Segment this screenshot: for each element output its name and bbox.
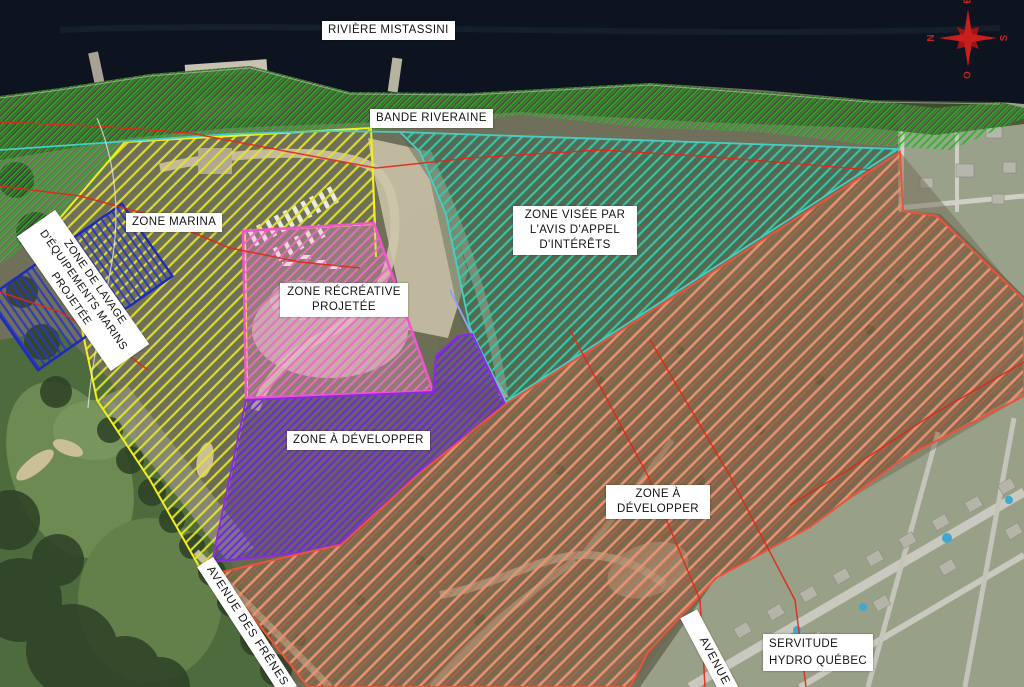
site-plan-map: RIVIÈRE MISTASSINI BANDE RIVERAINE ZONE … — [0, 0, 1024, 687]
aerial-photo-layers — [0, 0, 1024, 687]
label-servitude-hydro-quebec: SERVITUDE HYDRO QUÉBEC — [763, 634, 873, 671]
compass-west: O — [963, 71, 974, 79]
label-zone-marina: ZONE MARINA — [126, 213, 222, 232]
label-zone-developper-est: ZONE À DÉVELOPPER — [606, 485, 710, 519]
label-zone-recreative: ZONE RÉCRÉATIVE PROJETÉE — [280, 283, 408, 317]
compass-rose: N E S O — [930, 0, 1006, 76]
label-zone-avis-interets: ZONE VISÉE PAR L'AVIS D'APPEL D'INTÉRÊTS — [513, 206, 637, 255]
compass-south: S — [999, 35, 1010, 42]
label-bande-riveraine: BANDE RIVERAINE — [370, 109, 493, 128]
compass-north: N — [926, 34, 937, 41]
label-zone-developper-ouest: ZONE À DÉVELOPPER — [287, 431, 430, 450]
label-riviere-mistassini: RIVIÈRE MISTASSINI — [322, 21, 455, 40]
compass-east: E — [963, 0, 974, 4]
compass-star — [938, 8, 998, 68]
